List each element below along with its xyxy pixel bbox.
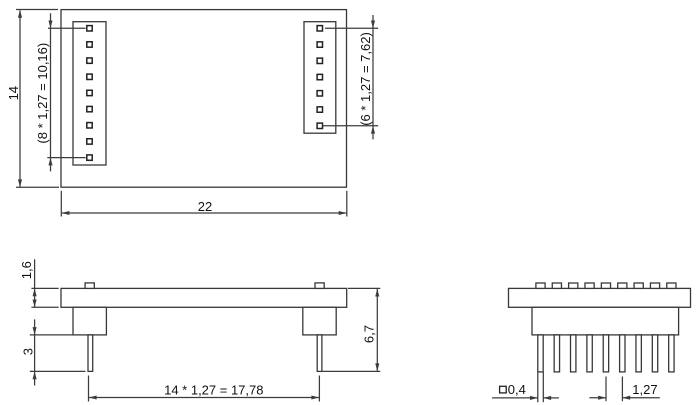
svg-text:0,4: 0,4: [508, 382, 526, 397]
svg-text:22: 22: [198, 199, 212, 214]
svg-text:1,27: 1,27: [632, 382, 657, 397]
svg-text:14 * 1,27 = 17,78: 14 * 1,27 = 17,78: [164, 382, 263, 397]
svg-text:1,6: 1,6: [19, 261, 34, 279]
svg-text:(8 * 1,27 = 10,16): (8 * 1,27 = 10,16): [35, 43, 50, 144]
svg-text:6,7: 6,7: [362, 325, 377, 343]
svg-text:(6 * 1,27 = 7,62): (6 * 1,27 = 7,62): [358, 32, 373, 126]
svg-text:3: 3: [21, 348, 36, 355]
svg-text:14: 14: [6, 86, 21, 100]
